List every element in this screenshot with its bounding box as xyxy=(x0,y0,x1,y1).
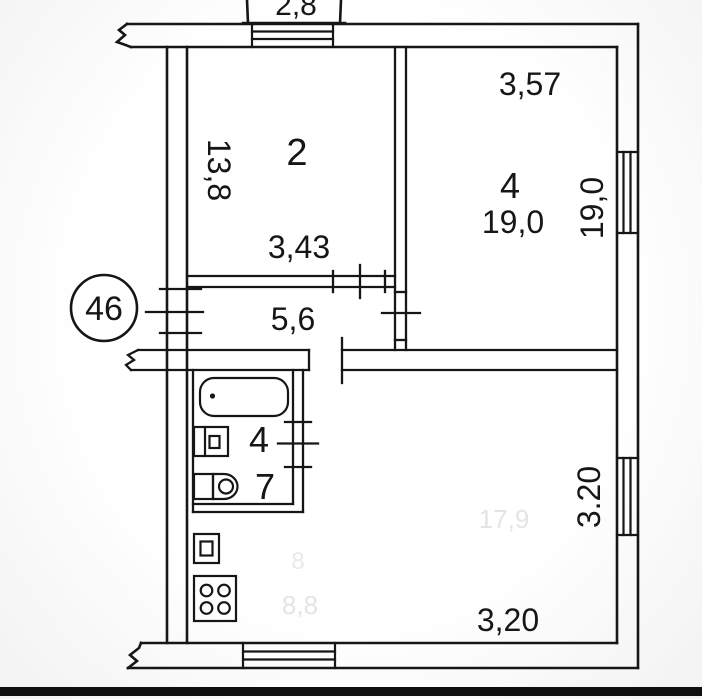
toilet-tank xyxy=(194,474,213,499)
room2-room4-divider-wall xyxy=(382,47,420,350)
apartment-number-label: 46 xyxy=(85,290,123,328)
stove-outline xyxy=(194,576,236,621)
stove-burner xyxy=(218,602,230,614)
top-wall-break-icon xyxy=(117,24,131,47)
balcony-area-label: 2,8 xyxy=(275,0,317,22)
floor-plan: 46 2,8 2 13,8 3,43 3,57 xyxy=(0,0,702,699)
room4-width-label: 3,57 xyxy=(499,66,561,102)
stove-icon xyxy=(194,576,236,621)
toilet-bowl-circle xyxy=(219,480,233,494)
living-ghost-label: 17,9 xyxy=(479,504,530,534)
sink-outline xyxy=(194,427,228,456)
kitchen-window xyxy=(243,643,335,668)
wall-break-icon xyxy=(126,350,138,370)
hallway-south-wall xyxy=(126,338,617,383)
balcony-right-side xyxy=(340,0,341,23)
room4-number-label: 4 xyxy=(500,165,520,206)
bathroom-toilet-label: 7 xyxy=(255,466,275,507)
bottom-border-bar xyxy=(0,687,702,696)
living-window xyxy=(617,458,638,535)
sink-basin xyxy=(210,436,220,448)
bathtub-drain xyxy=(210,393,215,398)
outer-walls xyxy=(117,24,638,668)
kitchen-ghost-label: 8,8 xyxy=(282,590,318,620)
counter-icon xyxy=(194,534,219,563)
floor-plan-canvas: 46 2,8 2 13,8 3,43 3,57 xyxy=(0,0,702,699)
room2-south-wall xyxy=(187,265,395,298)
counter-inner xyxy=(201,542,213,556)
balcony-left-side xyxy=(247,0,248,23)
bathroom-sink-label: 4 xyxy=(249,419,269,460)
bathtub-icon xyxy=(200,378,288,416)
living-width-label: 3,20 xyxy=(477,602,539,638)
stove-burner xyxy=(201,602,213,614)
bottom-wall-break-icon xyxy=(128,643,141,668)
room2-width-label: 3,43 xyxy=(268,229,330,265)
counter-outline xyxy=(194,534,219,563)
room2-window xyxy=(252,24,333,47)
apartment-number-badge: 46 xyxy=(71,275,137,341)
stove-burner xyxy=(201,585,213,597)
sink-icon xyxy=(194,427,228,456)
toilet-icon xyxy=(194,474,238,499)
room4-area-label: 19,0 xyxy=(482,204,544,240)
room4-side-label: 19,0 xyxy=(574,177,610,239)
room2-number-label: 2 xyxy=(286,132,307,174)
kitchen-ghost-small-label: 8 xyxy=(291,548,304,575)
stove-burner xyxy=(218,585,230,597)
room2-depth-label: 13,8 xyxy=(201,139,237,201)
room4-window xyxy=(617,152,638,233)
entrance-door xyxy=(146,289,203,333)
living-side-label: 3.20 xyxy=(571,466,607,528)
hallway-area-label: 5,6 xyxy=(271,301,315,337)
